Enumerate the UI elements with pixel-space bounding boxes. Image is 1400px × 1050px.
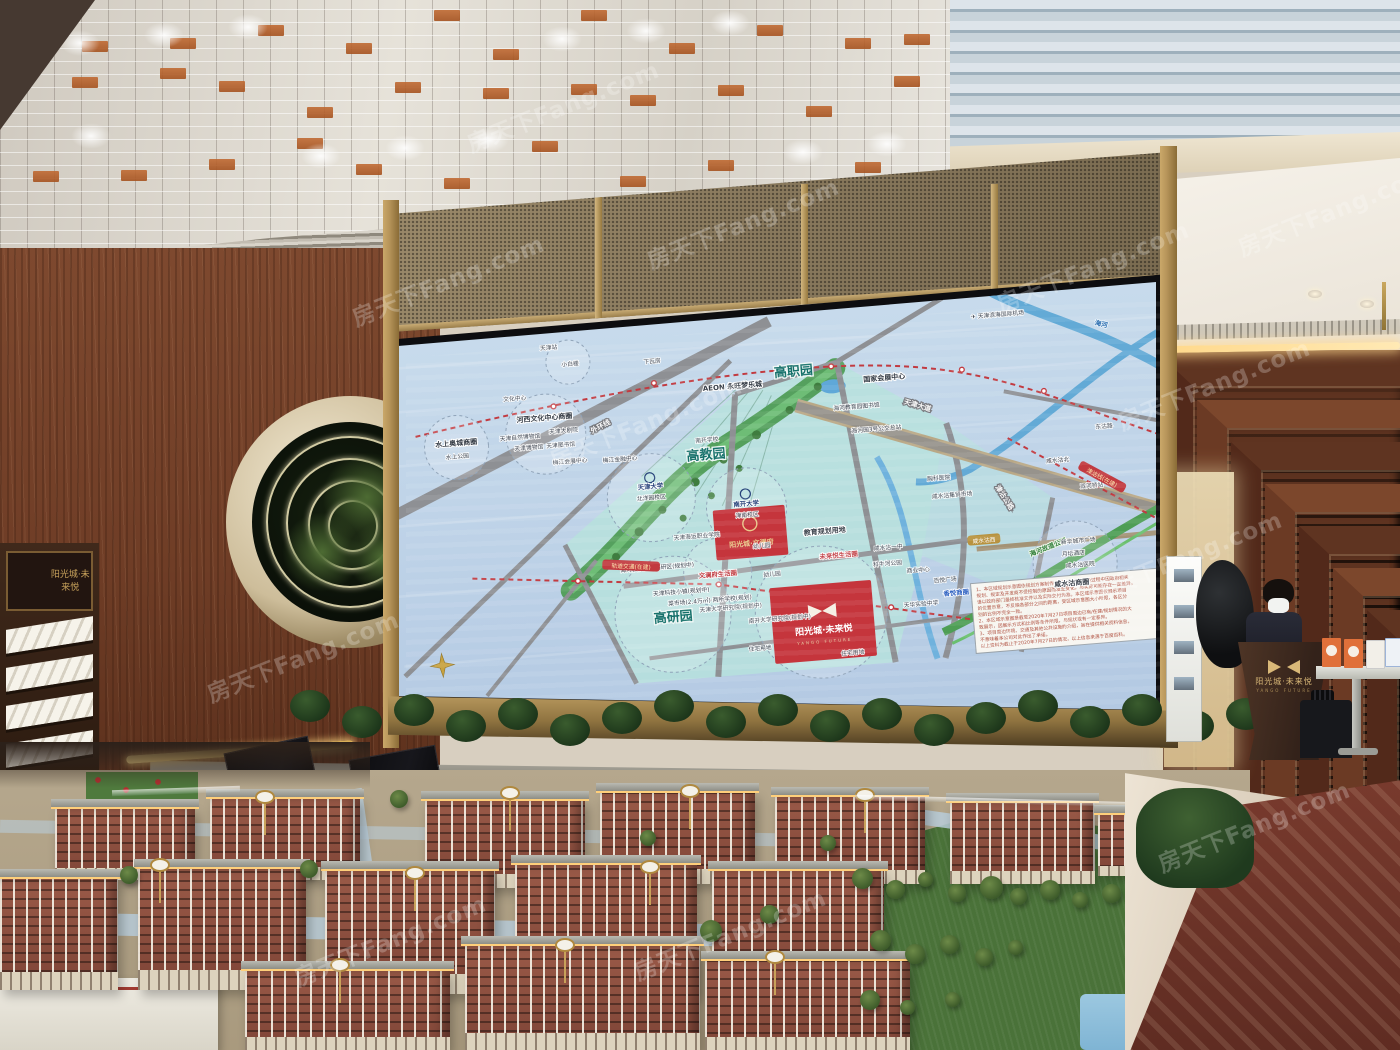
hedge-shrub bbox=[1018, 690, 1058, 722]
mosaic-accent-tile bbox=[493, 49, 519, 60]
sign-pole bbox=[339, 971, 341, 1003]
downlight bbox=[1360, 300, 1374, 308]
model-tree bbox=[980, 876, 1003, 899]
building-sign bbox=[255, 790, 275, 834]
model-tree bbox=[760, 905, 779, 924]
sign-pole bbox=[264, 803, 266, 835]
building-base bbox=[705, 1037, 910, 1050]
mosaic-accent-tile bbox=[571, 84, 597, 95]
sign-plate bbox=[555, 938, 575, 952]
downlight bbox=[1308, 290, 1322, 298]
building-sign bbox=[150, 858, 170, 902]
brochure-stand bbox=[1385, 638, 1400, 667]
wall-base-shadow bbox=[0, 742, 370, 788]
model-tree bbox=[1102, 884, 1121, 903]
building-base bbox=[0, 972, 118, 990]
sign-plate bbox=[255, 790, 275, 804]
model-building bbox=[465, 945, 700, 1050]
hedge-shrub bbox=[862, 698, 902, 730]
map-label: 高研园 bbox=[653, 608, 693, 627]
hedge-shrub bbox=[914, 714, 954, 746]
sign-plate bbox=[405, 866, 425, 880]
mosaic-accent-tile bbox=[483, 88, 509, 99]
mosaic-accent-tile bbox=[904, 34, 930, 45]
hedge-shrub bbox=[394, 694, 434, 726]
hedge-shrub bbox=[290, 690, 330, 722]
sign-plate bbox=[330, 958, 350, 972]
model-building bbox=[950, 802, 1095, 884]
model-tree bbox=[940, 935, 959, 954]
mosaic-accent-tile bbox=[757, 25, 783, 36]
sign-pole bbox=[564, 951, 566, 983]
model-tree bbox=[852, 868, 873, 889]
model-tree bbox=[860, 990, 880, 1010]
screen-frame-post bbox=[383, 200, 399, 748]
model-tree bbox=[700, 920, 722, 942]
kiosk-thumbnail bbox=[1174, 641, 1194, 654]
hedge-shrub bbox=[1070, 706, 1110, 738]
building-roof bbox=[0, 869, 122, 879]
model-tree bbox=[1010, 888, 1027, 905]
brochure-shelf bbox=[6, 616, 93, 657]
mosaic-accent-tile bbox=[219, 81, 245, 92]
hedge-shrub bbox=[654, 690, 694, 722]
brochure-stand bbox=[1344, 639, 1363, 668]
sign-pole bbox=[509, 799, 511, 831]
building-roof bbox=[511, 855, 701, 865]
sign-plate bbox=[150, 858, 170, 872]
mosaic-accent-tile bbox=[121, 170, 147, 181]
model-tree bbox=[120, 866, 138, 884]
mosaic-accent-tile bbox=[160, 68, 186, 79]
rack-plaque-text: 阳光城·未来悦 bbox=[50, 569, 92, 594]
hedge-shrub bbox=[706, 706, 746, 738]
mosaic-sparkle bbox=[542, 26, 582, 52]
building-roof bbox=[596, 783, 759, 793]
map-label: 高职园 bbox=[773, 362, 813, 381]
rack-plaque: 阳光城·未来悦 bbox=[6, 551, 93, 611]
building-sign bbox=[330, 958, 350, 1002]
mosaic-sparkle bbox=[626, 18, 666, 44]
mosaic-accent-tile bbox=[307, 107, 333, 118]
sign-pole bbox=[689, 797, 691, 829]
model-tree bbox=[300, 860, 318, 878]
building-base bbox=[950, 871, 1095, 884]
building-base bbox=[465, 1033, 700, 1050]
potted-plant bbox=[1136, 788, 1254, 888]
mosaic-accent-tile bbox=[532, 141, 558, 152]
building-roof bbox=[701, 951, 914, 961]
mosaic-accent-tile bbox=[434, 10, 460, 21]
sign-pole bbox=[864, 801, 866, 833]
mosaic-sparkle bbox=[71, 123, 111, 149]
mosaic-accent-tile bbox=[669, 43, 695, 54]
hedge-shrub bbox=[1122, 694, 1162, 726]
model-tree bbox=[870, 930, 891, 951]
map-label-group: 高研园 bbox=[653, 608, 693, 627]
mosaic-sparkle bbox=[301, 143, 341, 169]
architectural-scale-model bbox=[0, 770, 1250, 1050]
pendant-rod bbox=[1382, 282, 1386, 330]
table-base bbox=[1338, 748, 1378, 755]
brochure-shelf bbox=[6, 654, 93, 695]
mosaic-accent-tile bbox=[33, 171, 59, 182]
map-label-group: 高教园 bbox=[686, 445, 726, 464]
sign-plate bbox=[680, 784, 700, 798]
sign-pole bbox=[159, 871, 161, 903]
kiosk-thumbnail bbox=[1174, 569, 1194, 582]
hedge-shrub bbox=[446, 710, 486, 742]
mosaic-accent-tile bbox=[444, 178, 470, 189]
mosaic-accent-tile bbox=[346, 43, 372, 54]
model-tree bbox=[390, 790, 408, 808]
mosaic-sparkle bbox=[228, 14, 268, 40]
model-tree bbox=[905, 944, 925, 964]
model-tree bbox=[900, 1000, 915, 1015]
sign-plate bbox=[765, 950, 785, 964]
model-tree bbox=[1040, 880, 1060, 900]
building-sign bbox=[555, 938, 575, 982]
model-tree bbox=[918, 872, 933, 887]
building-sign bbox=[680, 784, 700, 828]
table-leg bbox=[1352, 679, 1361, 751]
sign-pole bbox=[414, 879, 416, 911]
digital-signage-kiosk bbox=[1166, 556, 1202, 742]
map-label-group: 高职园 bbox=[773, 362, 813, 381]
model-building bbox=[705, 960, 910, 1050]
hedge-shrub bbox=[758, 694, 798, 726]
building-sign bbox=[405, 866, 425, 910]
mosaic-accent-tile bbox=[356, 164, 382, 175]
mosaic-accent-tile bbox=[630, 95, 656, 106]
mosaic-sparkle bbox=[867, 131, 907, 157]
bow-logo bbox=[1268, 660, 1281, 674]
model-tree bbox=[1072, 892, 1088, 908]
model-building bbox=[0, 878, 118, 990]
mosaic-accent-tile bbox=[620, 176, 646, 187]
mosaic-accent-tile bbox=[855, 162, 881, 173]
building-roof bbox=[51, 799, 199, 809]
building-sign bbox=[640, 860, 660, 904]
brochure-shelf bbox=[6, 692, 93, 733]
mosaic-sparkle bbox=[385, 135, 425, 161]
led-location-map: 阳光城·文澜府 阳光城·未来悦 YANGO FUTURE 1、本区域规划示意图依… bbox=[390, 268, 1170, 730]
building-base bbox=[245, 1037, 450, 1050]
mosaic-sparkle bbox=[469, 127, 509, 153]
map-label: 高教园 bbox=[686, 445, 726, 464]
mosaic-accent-tile bbox=[845, 38, 871, 49]
mosaic-sparkle bbox=[783, 139, 823, 165]
building-sign bbox=[765, 950, 785, 994]
hedge-shrub bbox=[602, 702, 642, 734]
model-tree bbox=[948, 884, 966, 902]
mosaic-accent-tile bbox=[806, 106, 832, 117]
model-tree bbox=[886, 880, 905, 899]
sign-pole bbox=[649, 873, 651, 905]
kiosk-thumbnail bbox=[1174, 677, 1194, 690]
mosaic-accent-tile bbox=[718, 85, 744, 96]
mosaic-accent-tile bbox=[894, 76, 920, 87]
hedge-shrub bbox=[550, 714, 590, 746]
sign-pole bbox=[774, 963, 776, 995]
mosaic-accent-tile bbox=[209, 159, 235, 170]
kiosk-thumbnail bbox=[1174, 605, 1194, 618]
model-tree bbox=[1008, 940, 1023, 955]
sign-plate bbox=[640, 860, 660, 874]
model-tree bbox=[945, 992, 960, 1007]
mosaic-sparkle bbox=[710, 10, 750, 36]
mosaic-sparkle bbox=[144, 22, 184, 48]
hedge-shrub bbox=[498, 698, 538, 730]
mosaic-accent-tile bbox=[395, 82, 421, 93]
mosaic-accent-tile bbox=[72, 77, 98, 88]
hedge-shrub bbox=[810, 710, 850, 742]
mosaic-accent-tile bbox=[581, 10, 607, 21]
mosaic-accent-tile bbox=[708, 160, 734, 171]
hedge-shrub bbox=[966, 702, 1006, 734]
face-mask bbox=[1268, 598, 1289, 613]
brochure-stand bbox=[1366, 640, 1385, 669]
model-tree bbox=[640, 830, 656, 846]
model-tree bbox=[975, 948, 993, 966]
building-sign bbox=[500, 786, 520, 830]
building-roof bbox=[461, 936, 704, 946]
hedge-shrub bbox=[342, 706, 382, 738]
brochure-stand bbox=[1322, 638, 1341, 667]
model-tree bbox=[820, 835, 836, 851]
sign-plate bbox=[500, 786, 520, 800]
bow-logo bbox=[1287, 660, 1300, 674]
sales-center-photo: 阳光城·文澜府 阳光城·未来悦 YANGO FUTURE 1、本区域规划示意图依… bbox=[0, 0, 1400, 1050]
